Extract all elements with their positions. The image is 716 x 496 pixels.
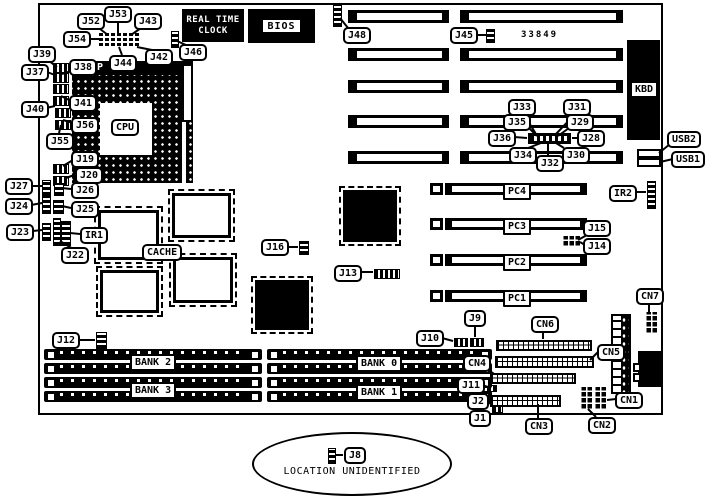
callout-j28: J28: [577, 130, 605, 147]
bank-label: BANK 2: [130, 354, 176, 371]
callout-j9: J9: [464, 310, 486, 327]
bank-label: BANK 1: [356, 384, 402, 401]
leader-line: [119, 47, 122, 55]
callout-j22: J22: [61, 247, 89, 264]
callout-cn1: CN1: [615, 392, 643, 409]
motherboard-diagram: P CPU REAL TIME CLOCK BIOS PC4 PC3 PC2 P…: [0, 0, 716, 496]
callout-j42: J42: [145, 49, 173, 66]
callout-j30: J30: [562, 147, 590, 164]
callout-cn2: CN2: [588, 417, 616, 434]
part-number: 33849: [521, 30, 558, 40]
callout-j23: J23: [6, 224, 34, 241]
cache-label: CACHE: [142, 244, 182, 261]
callout-cn7: CN7: [636, 288, 664, 305]
callout-j10: J10: [416, 330, 444, 347]
callout-j54: J54: [63, 31, 91, 48]
callout-cn4: CN4: [463, 355, 491, 372]
bank-label: BANK 3: [130, 382, 176, 399]
leader-line: [588, 409, 596, 417]
callout-j13: J13: [334, 265, 362, 282]
callout-ir2: IR2: [609, 185, 637, 202]
callout-j11: J11: [457, 377, 485, 394]
leader-line: [33, 230, 42, 231]
callout-j14: J14: [583, 238, 611, 255]
callout-cn3: CN3: [525, 418, 553, 435]
callout-j36: J36: [488, 130, 516, 147]
callout-j32: J32: [536, 155, 564, 172]
callout-j12: J12: [52, 332, 80, 349]
callout-j25: J25: [71, 201, 99, 218]
leader-line: [70, 233, 80, 234]
pci-slot-label: PC4: [503, 183, 531, 200]
callout-j29: J29: [566, 114, 594, 131]
callout-j34: J34: [509, 147, 537, 164]
bank-label: BANK 0: [356, 355, 402, 372]
callout-j35: J35: [503, 114, 531, 131]
callout-cn6: CN6: [531, 316, 559, 333]
callout-j56: J56: [71, 117, 99, 134]
leader-line: [59, 125, 61, 133]
callout-j1: J1: [469, 410, 491, 427]
callout-cn5: CN5: [597, 344, 625, 361]
leader-line: [100, 29, 108, 35]
callout-j40: J40: [21, 101, 49, 118]
callout-j26: J26: [71, 182, 99, 199]
leader-line: [62, 206, 71, 208]
callout-j15: J15: [583, 220, 611, 237]
callout-j41: J41: [69, 95, 97, 112]
callout-j16: J16: [261, 239, 289, 256]
leader-line: [62, 188, 71, 189]
callout-usb2: USB2: [667, 131, 701, 148]
callout-j43: J43: [134, 13, 162, 30]
callout-j27: J27: [5, 178, 33, 195]
pci-slot-label: PC2: [503, 254, 531, 271]
kbd-label: KBD: [631, 82, 657, 97]
callout-j45: J45: [450, 27, 478, 44]
callout-j24: J24: [5, 198, 33, 215]
callout-j19: J19: [71, 151, 99, 168]
pci-slot-label: PC3: [503, 218, 531, 235]
callout-j37: J37: [21, 64, 49, 81]
callout-j8: J8: [344, 447, 366, 464]
callout-usb1: USB1: [671, 151, 705, 168]
callout-j46: J46: [179, 44, 207, 61]
callout-j2: J2: [467, 393, 489, 410]
callout-j39: J39: [28, 46, 56, 63]
pci-slot-label: PC1: [503, 290, 531, 307]
callout-j53: J53: [104, 6, 132, 23]
cpu-label: CPU: [111, 119, 139, 136]
callout-j48: J48: [343, 27, 371, 44]
callout-j55: J55: [46, 133, 74, 150]
callout-j44: J44: [109, 55, 137, 72]
callout-j52: J52: [77, 13, 105, 30]
callout-ir1: IR1: [80, 227, 108, 244]
callout-j38: J38: [69, 59, 97, 76]
